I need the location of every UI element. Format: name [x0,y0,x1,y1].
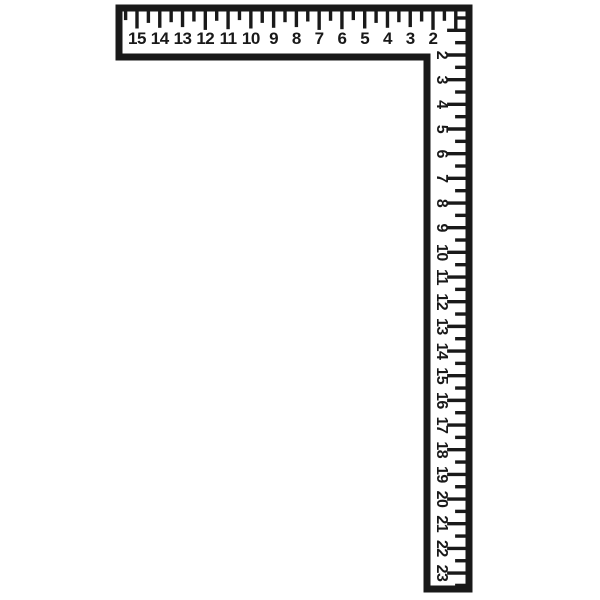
ruler-number: 8 [433,199,450,208]
ruler-number: 12 [433,293,450,310]
ruler-number: 4 [433,100,450,109]
ruler-number: 13 [174,29,192,48]
square-outline [119,8,469,589]
ruler-number: 9 [433,223,450,232]
ruler-number: 16 [433,392,450,409]
ruler-number: 10 [433,244,450,261]
framing-square-drawing: 15141312111098765432 2345678910111213141… [0,0,600,600]
ruler-number: 2 [429,29,438,48]
ruler-number: 3 [433,75,450,84]
ruler-number: 14 [151,29,170,48]
ruler-number: 17 [433,417,450,434]
ruler-number: 11 [220,29,237,48]
ruler-number: 13 [433,318,450,335]
ruler-number: 11 [433,269,450,286]
ruler-number: 5 [360,29,369,48]
ruler-number: 7 [433,174,450,183]
ruler-number: 22 [433,540,450,557]
ruler-number: 6 [433,149,450,158]
ruler-number: 23 [433,565,450,582]
ruler-number: 19 [433,466,450,483]
ruler-number: 4 [383,29,393,48]
ruler-number: 21 [433,515,450,532]
ruler-number: 14 [433,343,450,360]
ruler-number: 3 [406,29,415,48]
ruler-number: 15 [128,29,146,48]
ruler-number: 15 [433,367,450,384]
ruler-number: 8 [292,29,301,48]
ruler-number: 12 [196,29,214,48]
ruler-number: 10 [242,29,260,48]
ruler-number: 20 [433,491,450,508]
ruler-number: 5 [433,125,450,134]
ruler-number: 6 [337,29,346,48]
ruler-number: 2 [433,51,450,60]
ruler-number: 7 [315,29,324,48]
framing-square-illustration: 15141312111098765432 2345678910111213141… [0,0,600,600]
ruler-number: 9 [269,29,278,48]
vertical-ruler: 234567891011121314151617181920212223 [433,18,467,585]
ruler-number: 18 [433,441,450,458]
